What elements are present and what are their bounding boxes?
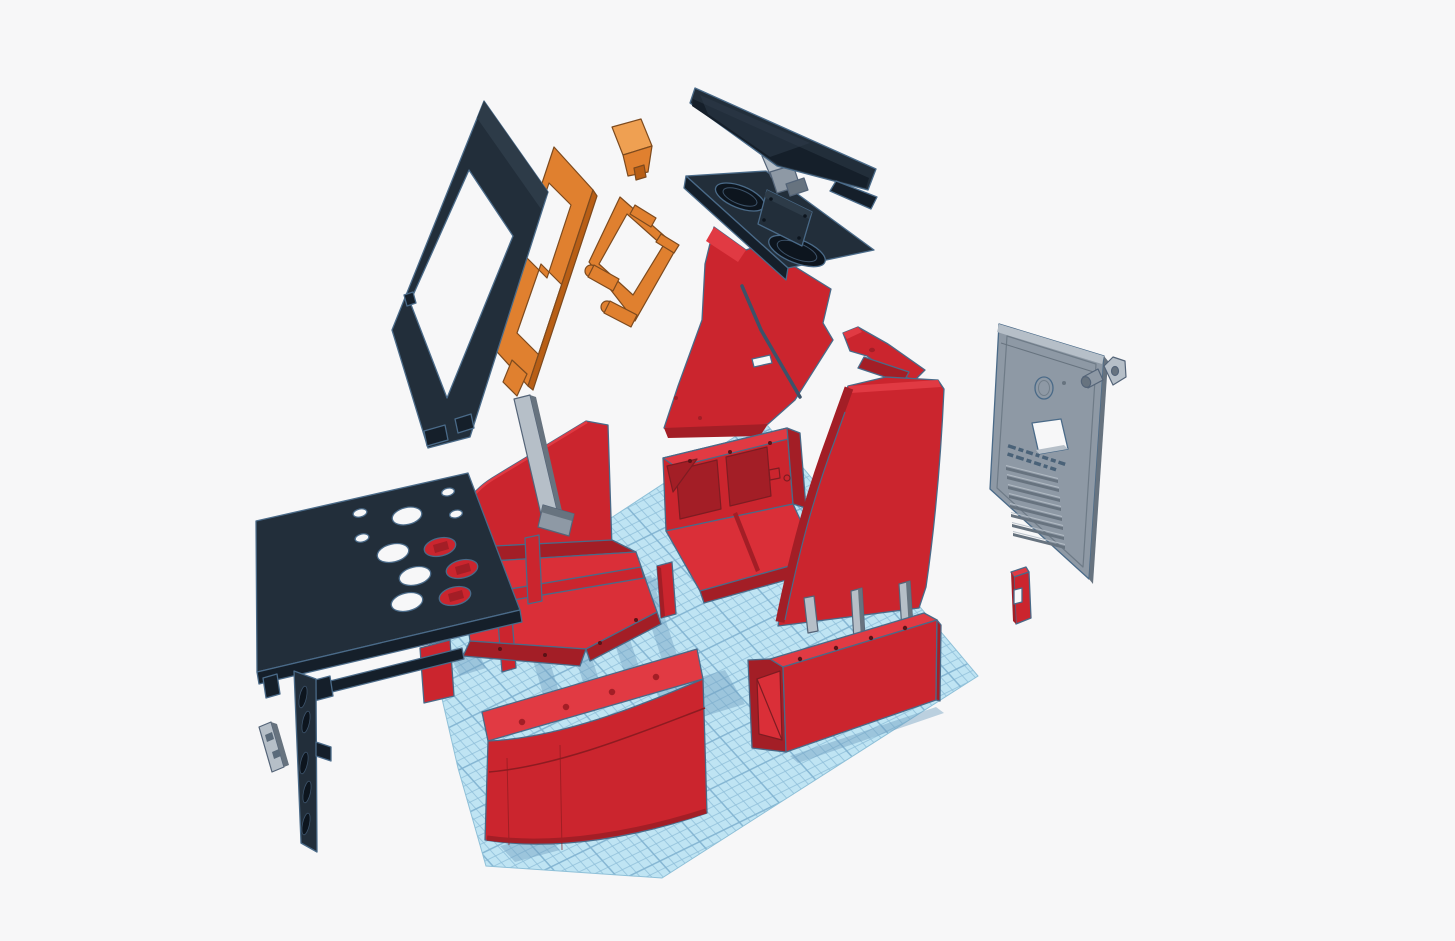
small-red-bracket[interactable] — [1011, 567, 1031, 624]
mounting-clip[interactable] — [259, 722, 289, 772]
design-viewport[interactable] — [0, 0, 1455, 941]
monitor-mount-bracket[interactable] — [585, 197, 679, 327]
red-stake[interactable] — [657, 562, 676, 618]
mount-wedge[interactable] — [612, 119, 652, 180]
back-door-panel[interactable] — [990, 324, 1108, 584]
shell-window — [726, 447, 771, 506]
scene-canvas[interactable] — [0, 0, 1455, 941]
